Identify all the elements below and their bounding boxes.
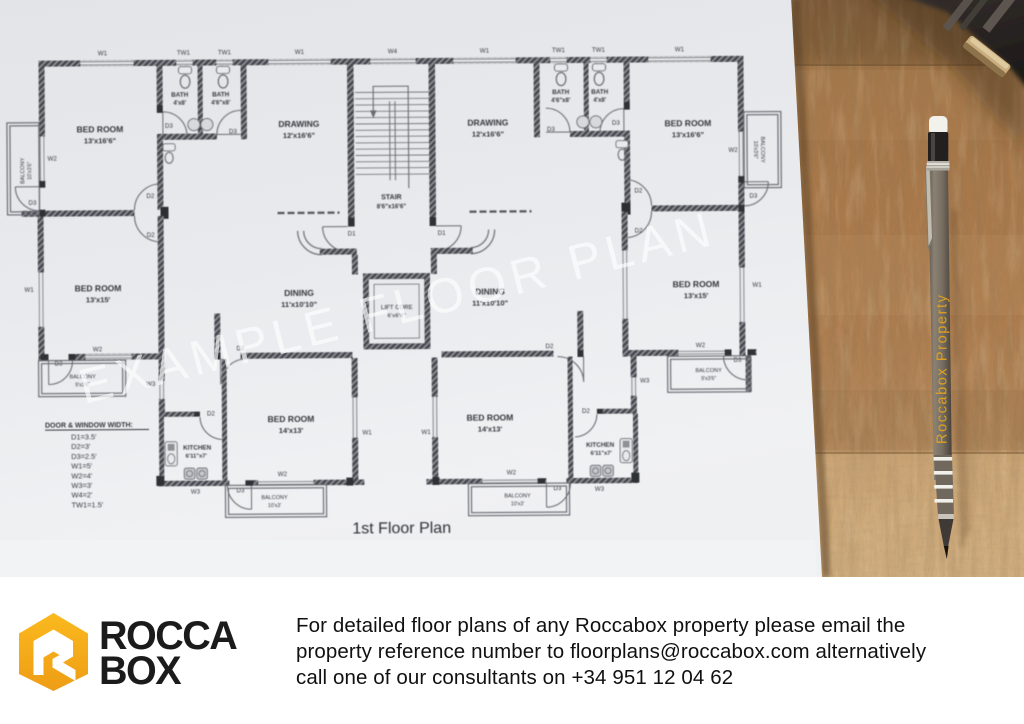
svg-text:D2: D2 [634,188,643,195]
svg-text:BED ROOM: BED ROOM [268,414,315,424]
svg-text:DINING: DINING [284,288,314,298]
svg-text:6'11"x7': 6'11"x7' [591,451,613,457]
svg-text:D3: D3 [734,357,743,364]
svg-text:D1: D1 [348,231,357,238]
svg-text:D2: D2 [545,343,554,350]
svg-text:13'x15': 13'x15' [684,291,709,300]
svg-text:D3: D3 [165,123,174,130]
svg-text:14'x13': 14'x13' [279,426,304,435]
svg-text:D1=3.5': D1=3.5' [71,432,97,441]
svg-text:W2: W2 [696,342,706,349]
svg-text:W1: W1 [362,429,372,436]
svg-text:BALCONY: BALCONY [759,136,765,163]
svg-text:W2: W2 [93,346,103,353]
svg-text:BED ROOM: BED ROOM [77,124,124,134]
svg-text:BATH: BATH [171,92,189,99]
svg-text:W2: W2 [507,469,517,476]
svg-text:W1: W1 [480,48,490,55]
svg-text:W2=4': W2=4' [71,471,93,480]
svg-text:13'x16'6": 13'x16'6" [84,136,117,145]
svg-text:4'x8': 4'x8' [173,101,186,107]
svg-text:TW1=1.5': TW1=1.5' [72,500,104,509]
svg-text:TW1: TW1 [177,50,191,57]
svg-text:W1: W1 [421,429,431,436]
svg-text:BALCONY: BALCONY [695,368,722,374]
svg-text:W2: W2 [47,156,57,163]
svg-text:12'x16'6": 12'x16'6" [283,131,316,140]
svg-text:TW1: TW1 [592,47,606,54]
svg-text:D3: D3 [612,120,621,127]
svg-text:D3: D3 [28,200,37,207]
svg-text:Roccabox Property: Roccabox Property [935,293,951,444]
svg-text:6'11"x7': 6'11"x7' [186,454,208,460]
svg-text:W1: W1 [675,46,685,53]
svg-text:BATH: BATH [591,89,609,96]
svg-text:W1: W1 [98,50,108,57]
svg-text:W3: W3 [640,377,650,384]
svg-text:10'x3'6": 10'x3'6" [752,141,758,159]
svg-text:D3=2.5': D3=2.5' [71,452,97,461]
svg-text:BED ROOM: BED ROOM [664,118,711,128]
svg-text:10'x3': 10'x3' [268,503,281,509]
svg-text:KITCHEN: KITCHEN [183,445,211,452]
svg-text:KITCHEN: KITCHEN [586,442,614,449]
svg-text:DRAWING: DRAWING [467,117,509,127]
svg-text:W1: W1 [24,287,34,294]
svg-text:9'x3'6": 9'x3'6" [701,376,716,382]
svg-text:W2: W2 [728,147,738,154]
svg-text:4'6"x8': 4'6"x8' [211,100,231,106]
svg-text:BALCONY: BALCONY [20,157,26,184]
svg-text:D2: D2 [207,410,216,417]
svg-text:W3=3': W3=3' [71,481,93,490]
svg-text:TW1: TW1 [552,47,566,54]
svg-text:D1: D1 [438,230,447,237]
svg-text:BATH: BATH [552,89,570,96]
svg-text:12'x16'6": 12'x16'6" [472,129,505,138]
svg-text:W4: W4 [388,48,398,55]
svg-text:TW1: TW1 [218,49,232,56]
svg-text:4'x8': 4'x8' [593,98,606,104]
svg-text:10'x3': 10'x3' [511,501,524,507]
svg-text:DOOR & WINDOW WIDTH:: DOOR & WINDOW WIDTH: [45,422,133,430]
svg-text:BED ROOM: BED ROOM [467,412,514,422]
svg-text:BALCONY: BALCONY [504,493,531,499]
svg-text:1st Floor Plan: 1st Floor Plan [352,520,451,538]
svg-text:W1: W1 [295,49,305,56]
svg-text:D3: D3 [749,193,758,200]
svg-text:STAIR: STAIR [381,194,402,201]
svg-text:W3: W3 [595,486,605,493]
svg-text:13'x15': 13'x15' [86,295,111,304]
svg-text:W2: W2 [278,471,288,478]
svg-text:13'x16'6": 13'x16'6" [672,130,705,139]
svg-text:BALCONY: BALCONY [261,495,288,501]
svg-text:W1: W1 [752,282,762,289]
svg-text:D2=3': D2=3' [71,442,91,451]
svg-text:10'x3'6": 10'x3'6" [27,162,33,180]
svg-text:D2: D2 [147,232,156,239]
svg-text:BED ROOM: BED ROOM [75,283,122,293]
svg-text:D2: D2 [146,193,155,200]
svg-text:4'6"x8': 4'6"x8' [551,98,571,104]
svg-text:W4=2': W4=2' [71,491,93,500]
svg-text:BATH: BATH [212,91,230,98]
svg-text:D3: D3 [547,126,556,133]
svg-text:W3: W3 [191,489,201,496]
svg-text:8'6"x16'6": 8'6"x16'6" [377,203,407,210]
svg-text:DRAWING: DRAWING [278,119,320,129]
svg-text:W1=5': W1=5' [71,461,93,470]
svg-text:BED ROOM: BED ROOM [673,279,720,289]
svg-text:14'x13': 14'x13' [478,424,503,433]
svg-text:D2: D2 [582,408,591,415]
svg-text:D3: D3 [229,128,238,135]
